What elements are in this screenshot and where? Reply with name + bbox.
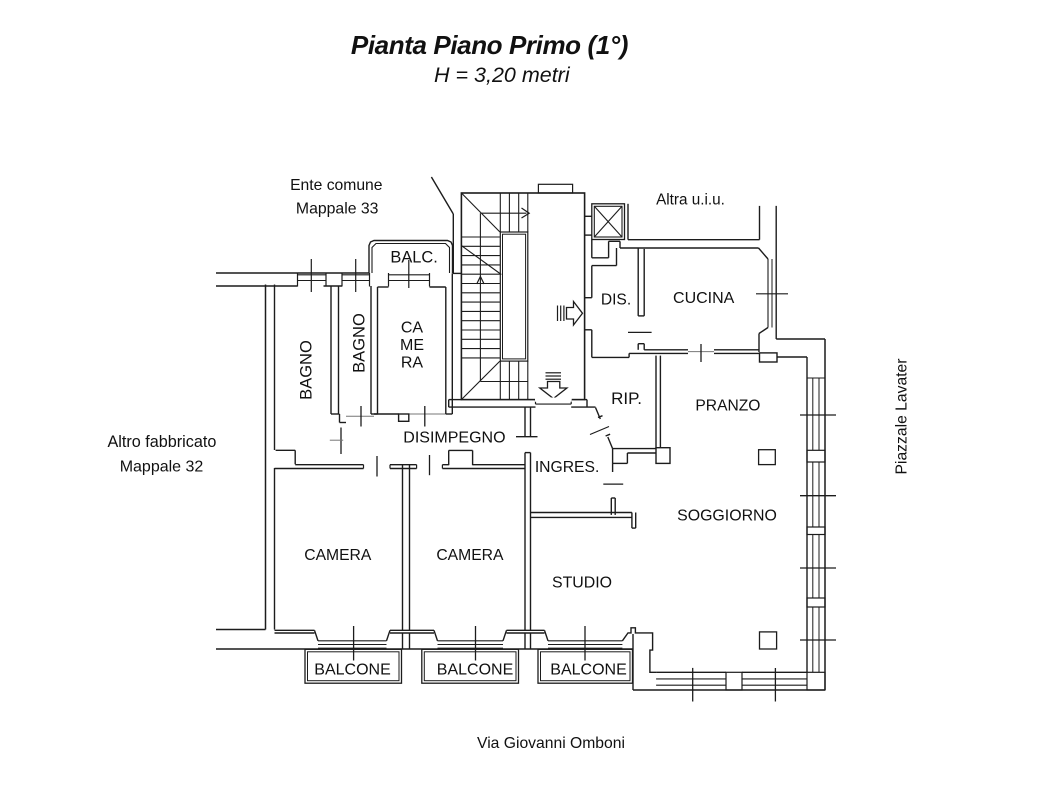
svg-text:Ente comune: Ente comune bbox=[290, 177, 383, 194]
svg-text:INGRES.: INGRES. bbox=[535, 459, 600, 476]
svg-text:BAGNO: BAGNO bbox=[351, 313, 369, 373]
svg-text:Via Giovanni Omboni: Via Giovanni Omboni bbox=[477, 735, 625, 752]
svg-text:BALC.: BALC. bbox=[390, 249, 437, 267]
svg-text:CAMERA: CAMERA bbox=[304, 547, 372, 564]
svg-text:PRANZO: PRANZO bbox=[695, 398, 760, 415]
svg-text:RIP.: RIP. bbox=[611, 389, 642, 408]
svg-text:CAMERA: CAMERA bbox=[436, 547, 504, 564]
svg-text:BALCONE: BALCONE bbox=[437, 662, 513, 679]
svg-text:BALCONE: BALCONE bbox=[314, 662, 390, 679]
svg-text:H = 3,20 metri: H = 3,20 metri bbox=[434, 63, 571, 87]
svg-text:DIS.: DIS. bbox=[601, 292, 631, 309]
svg-text:CUCINA: CUCINA bbox=[673, 290, 735, 307]
svg-text:STUDIO: STUDIO bbox=[552, 575, 612, 592]
svg-text:Altra u.i.u.: Altra u.i.u. bbox=[656, 192, 725, 209]
svg-text:Piazzale Lavater: Piazzale Lavater bbox=[894, 359, 911, 475]
svg-text:DISIMPEGNO: DISIMPEGNO bbox=[403, 430, 505, 447]
svg-text:Altro fabbricato: Altro fabbricato bbox=[107, 433, 216, 451]
svg-text:RA: RA bbox=[401, 354, 424, 371]
svg-text:SOGGIORNO: SOGGIORNO bbox=[677, 508, 777, 525]
svg-text:Mappale 32: Mappale 32 bbox=[120, 459, 204, 476]
svg-text:CA: CA bbox=[401, 320, 424, 337]
svg-text:Pianta Piano Primo (1°): Pianta Piano Primo (1°) bbox=[351, 30, 628, 60]
svg-text:Mappale 33: Mappale 33 bbox=[296, 201, 379, 218]
svg-text:BALCONE: BALCONE bbox=[550, 662, 626, 679]
svg-text:ME: ME bbox=[400, 337, 424, 354]
svg-text:BAGNO: BAGNO bbox=[297, 340, 315, 400]
